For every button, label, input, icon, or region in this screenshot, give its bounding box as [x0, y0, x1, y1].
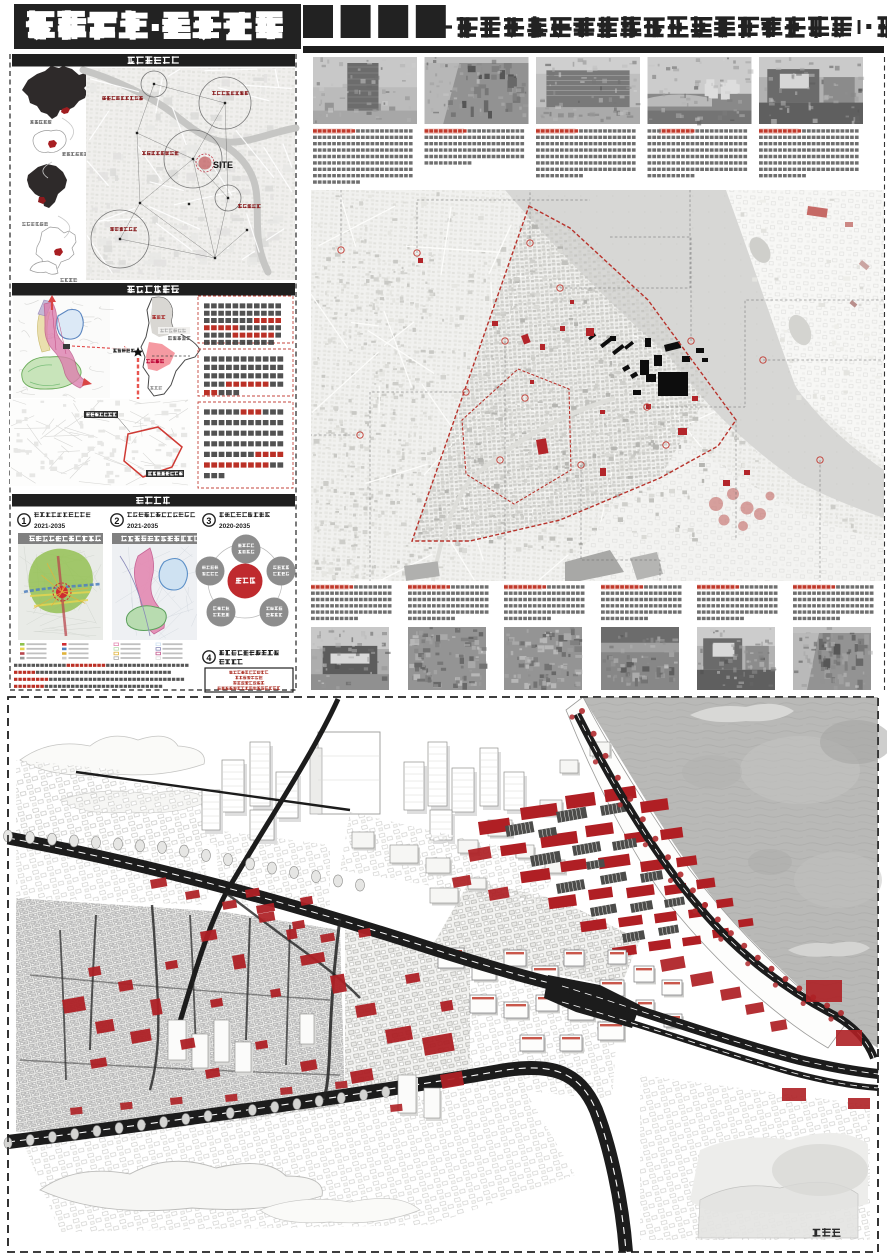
svg-text:2021-2035: 2021-2035: [34, 523, 65, 530]
svg-text:2021-2035: 2021-2035: [127, 523, 158, 530]
svg-text:2: 2: [114, 516, 119, 526]
svg-text:SITE: SITE: [213, 160, 233, 170]
svg-text:2020-2035: 2020-2035: [219, 523, 250, 530]
svg-text:4: 4: [206, 653, 211, 663]
svg-text:1: 1: [21, 516, 26, 526]
svg-text:3: 3: [206, 516, 211, 526]
